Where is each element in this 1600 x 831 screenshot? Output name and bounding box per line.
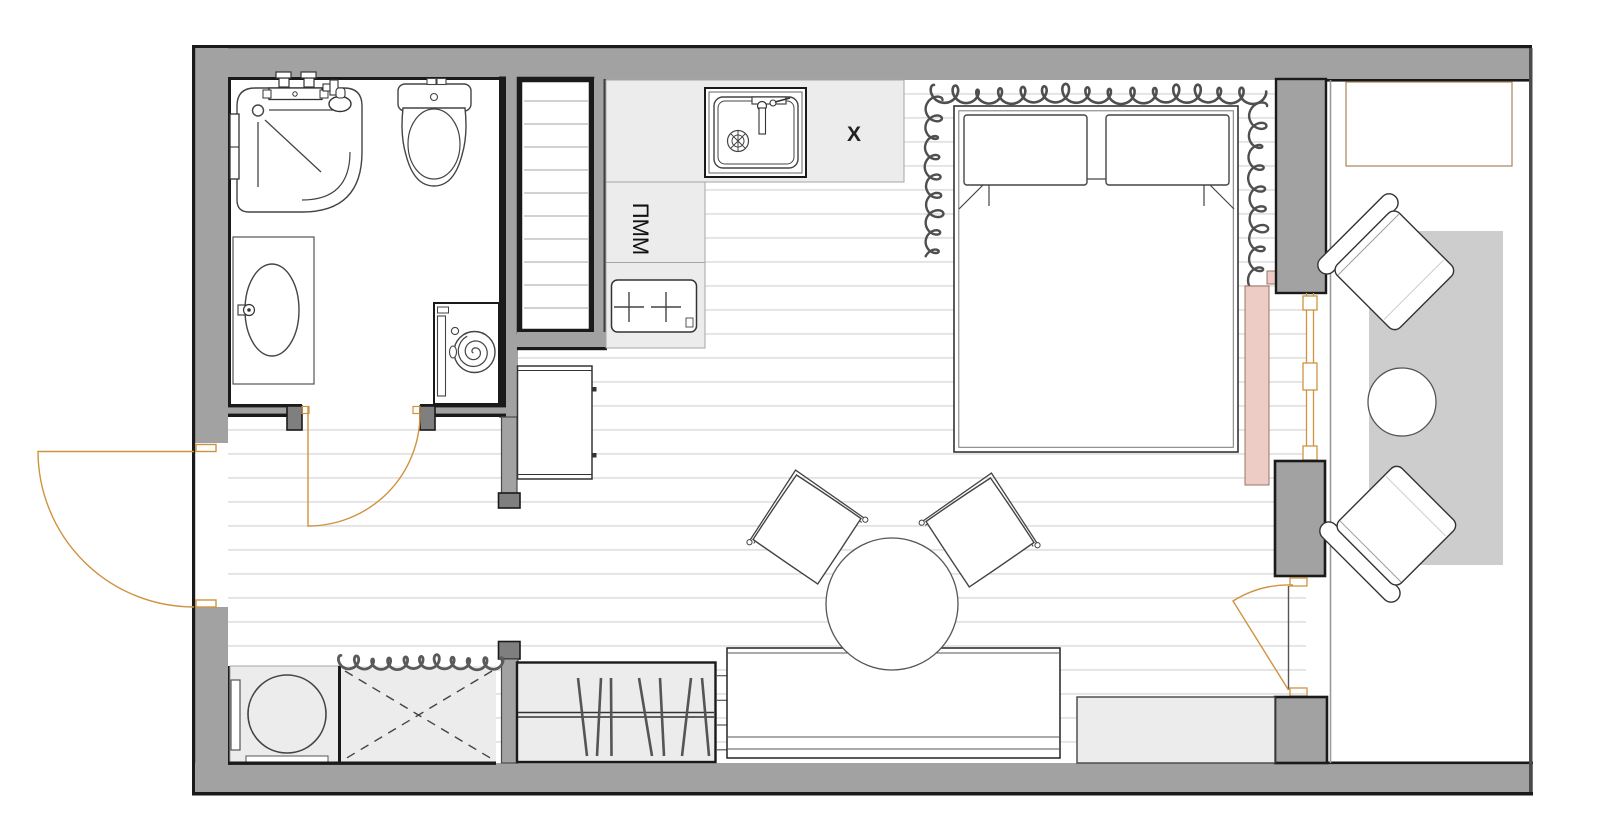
svg-text:ПММ: ПММ xyxy=(628,203,653,255)
svg-text:X: X xyxy=(847,123,861,146)
